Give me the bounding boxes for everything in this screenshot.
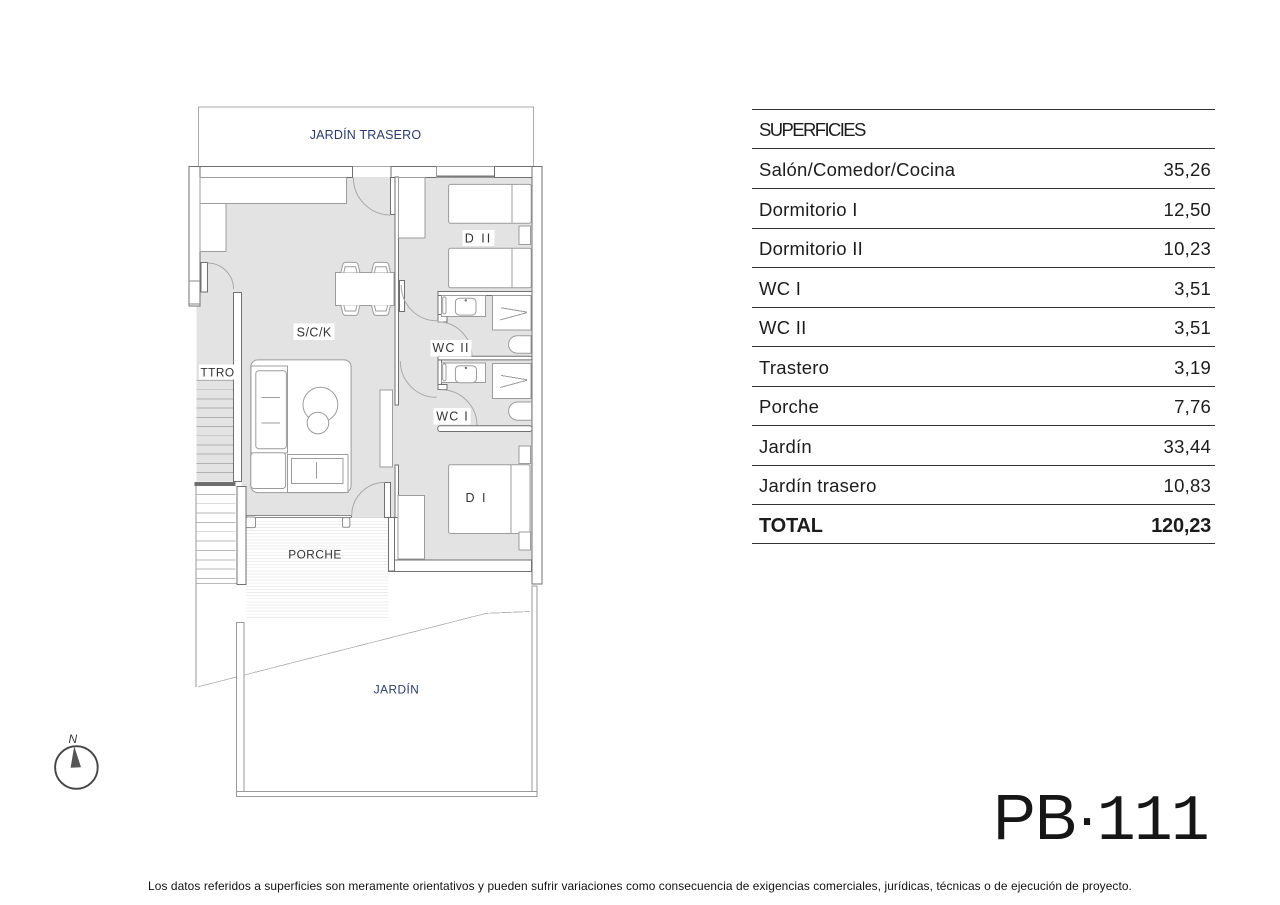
- svg-text:D I: D I: [466, 491, 488, 505]
- svg-text:N: N: [68, 732, 77, 746]
- svg-text:WC II: WC II: [432, 341, 469, 355]
- svg-text:JARDÍN: JARDÍN: [374, 682, 420, 696]
- svg-text:D II: D II: [465, 232, 492, 246]
- svg-text:WC I: WC I: [436, 409, 469, 423]
- svg-text:TTRO: TTRO: [200, 366, 234, 380]
- svg-text:JARDÍN TRASERO: JARDÍN TRASERO: [310, 127, 422, 142]
- svg-text:PORCHE: PORCHE: [288, 547, 341, 561]
- svg-text:S/C/K: S/C/K: [297, 326, 332, 340]
